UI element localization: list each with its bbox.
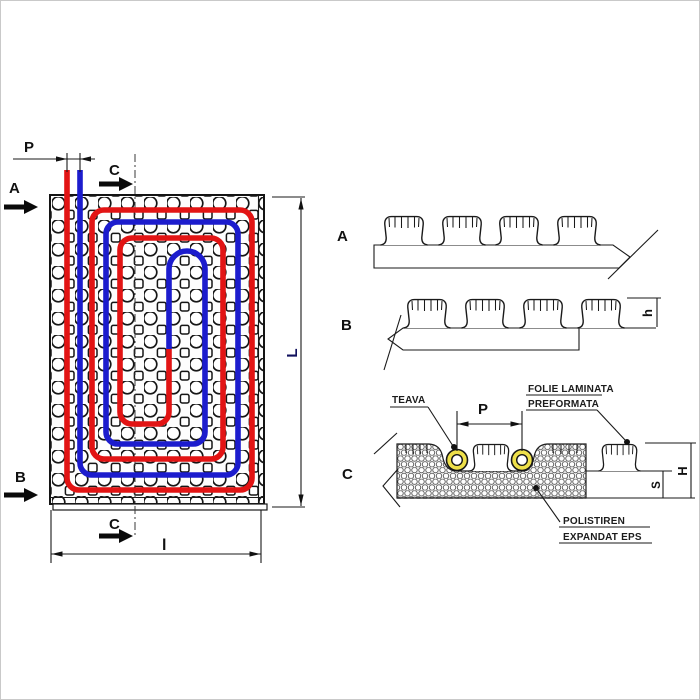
pipe-cross-section-2 [512, 450, 533, 471]
panel-bottom-flange [53, 504, 267, 510]
profile-a-base-strip [374, 245, 630, 268]
leader-dot [624, 439, 630, 445]
width-dimension: l [51, 510, 261, 563]
section-marker-b: B [4, 469, 38, 502]
pipe-pitch-dim-label: P [478, 401, 488, 418]
screed-dim-label: S [651, 481, 663, 489]
eps-callout-line1: POLISTIREN [563, 516, 625, 527]
profile-c: C P [342, 384, 696, 543]
stud-profile [404, 300, 451, 328]
profile-b: B h [341, 298, 661, 370]
foil-stud-profile [598, 444, 640, 471]
leader-dot [451, 444, 457, 450]
marker-c-top-label: C [109, 162, 120, 179]
marker-a-arrow-icon [4, 200, 38, 214]
total-height-dim-label: H [675, 466, 690, 475]
foil-callout-line2: PREFORMATA [528, 399, 599, 410]
stud-height-dimension: h [627, 298, 661, 327]
screed-dimension: S [648, 471, 672, 498]
profile-a: A [337, 217, 658, 279]
marker-c-bottom-label: C [109, 516, 120, 533]
stud-profile [496, 217, 543, 245]
profile-a-label: A [337, 228, 348, 245]
section-marker-c-top: C [99, 162, 133, 191]
marker-b-arrow-icon [4, 488, 38, 502]
marker-a-label: A [9, 180, 20, 197]
width-dim-label: l [162, 537, 166, 554]
section-marker-a: A [4, 180, 38, 214]
stud-height-dim-label: h [640, 309, 655, 317]
stud-profile [381, 217, 428, 245]
marker-c-top-arrow-icon [99, 177, 133, 191]
foil-callout-line1: FOLIE LAMINATA [528, 384, 614, 395]
heating-panel-diagram: P A B C C [1, 1, 699, 699]
profile-b-label: B [341, 317, 352, 334]
pipe-callout-label: TEAVA [392, 395, 425, 406]
eps-callout-line2: EXPANDAT EPS [563, 532, 642, 543]
length-dimension: L [272, 197, 305, 507]
stud-profile [439, 217, 486, 245]
pipe-callout: TEAVA [390, 395, 457, 450]
profile-b-base-strip [388, 328, 656, 350]
profile-c-label: C [342, 466, 353, 483]
marker-b-label: B [15, 469, 26, 486]
pitch-dimension: P [13, 139, 95, 172]
stud-profile [520, 300, 567, 328]
section-marker-c-bottom: C [99, 516, 133, 543]
profile-c-break-line [374, 433, 397, 454]
pipe-pitch-dimension: P [457, 401, 522, 451]
profile-a-break-line [608, 230, 658, 279]
stud-profile [554, 217, 601, 245]
length-dim-label: L [284, 348, 301, 357]
plan-view: P A B C C [4, 139, 305, 563]
pipe-cross-section-1 [447, 450, 468, 471]
diagram-canvas: P A B C C [0, 0, 700, 700]
profile-b-break-line [384, 315, 401, 370]
pitch-dim-label: P [24, 139, 34, 156]
foil-callout: FOLIE LAMINATA PREFORMATA [526, 384, 630, 445]
stud-profile [462, 300, 509, 328]
foil-stud-profile [469, 444, 512, 471]
stud-profile [578, 300, 625, 328]
